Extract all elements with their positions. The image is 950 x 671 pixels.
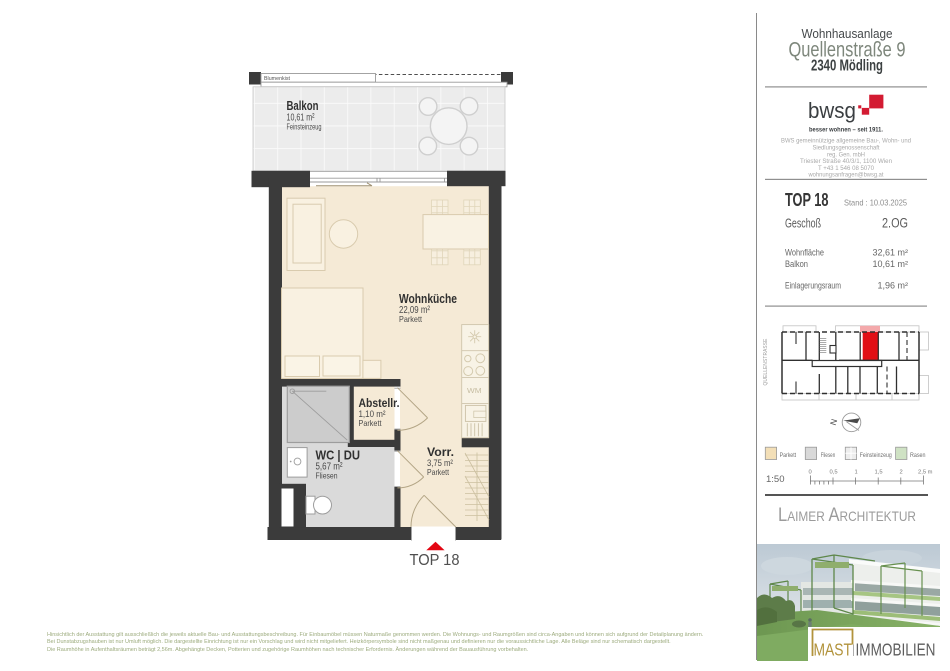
svg-text:bwsg: bwsg xyxy=(808,98,856,123)
svg-text:2340 Mödling: 2340 Mödling xyxy=(811,58,883,75)
svg-text:Parkett: Parkett xyxy=(359,418,383,428)
svg-text:2.OG: 2.OG xyxy=(882,216,908,231)
svg-text:WC | DU: WC | DU xyxy=(316,449,361,463)
svg-text:Balkon: Balkon xyxy=(785,259,808,269)
svg-text:Fliesen: Fliesen xyxy=(821,453,836,459)
svg-text:10,61 m²: 10,61 m² xyxy=(872,259,908,269)
svg-text:Feinsteinzeug: Feinsteinzeug xyxy=(860,453,892,459)
svg-text:1: 1 xyxy=(855,470,858,476)
svg-text:32,61 m²: 32,61 m² xyxy=(872,248,908,258)
svg-text:WM: WM xyxy=(467,386,482,395)
svg-text:Parkett: Parkett xyxy=(780,453,797,459)
svg-text:Stand : 10.03.2025: Stand : 10.03.2025 xyxy=(844,198,907,208)
svg-text:Geschoß: Geschoß xyxy=(785,216,821,231)
svg-text:Feinsteinzeug: Feinsteinzeug xyxy=(287,122,322,132)
svg-text:Rasen: Rasen xyxy=(910,453,926,459)
svg-text:1,5: 1,5 xyxy=(875,470,883,476)
svg-text:0: 0 xyxy=(809,470,812,476)
svg-text:QUELLENSTRASSE: QUELLENSTRASSE xyxy=(763,338,769,385)
svg-text:2: 2 xyxy=(900,470,903,476)
svg-text:Blumenkist: Blumenkist xyxy=(264,76,290,82)
svg-text:Laimer Architektur: Laimer Architektur xyxy=(778,504,916,526)
svg-text:Einlagerungsraum: Einlagerungsraum xyxy=(785,281,841,291)
svg-text:BWS gemeinnützige allgemeine B: BWS gemeinnützige allgemeine Bau-, Wohn-… xyxy=(781,138,911,145)
svg-text:TOP 18: TOP 18 xyxy=(785,189,829,210)
svg-text:0,5: 0,5 xyxy=(830,470,838,476)
svg-text:Wohnküche: Wohnküche xyxy=(399,291,457,306)
svg-text:Balkon: Balkon xyxy=(287,99,319,113)
svg-text:wohnungsanfragen@bwsg.at: wohnungsanfragen@bwsg.at xyxy=(808,172,884,179)
svg-text:1,96 m²: 1,96 m² xyxy=(877,281,908,291)
svg-text:TOP 18: TOP 18 xyxy=(410,552,460,569)
svg-text:Parkett: Parkett xyxy=(427,467,450,477)
svg-text:Fliesen: Fliesen xyxy=(316,471,338,481)
svg-text:besser wohnen – seit 1911.: besser wohnen – seit 1911. xyxy=(809,127,883,134)
svg-text:2,5 m: 2,5 m xyxy=(918,470,933,476)
svg-text:Vorr.: Vorr. xyxy=(427,445,454,459)
svg-text:Wohnfläche: Wohnfläche xyxy=(785,248,824,258)
svg-text:Parkett: Parkett xyxy=(399,314,423,324)
svg-text:N: N xyxy=(828,418,839,427)
